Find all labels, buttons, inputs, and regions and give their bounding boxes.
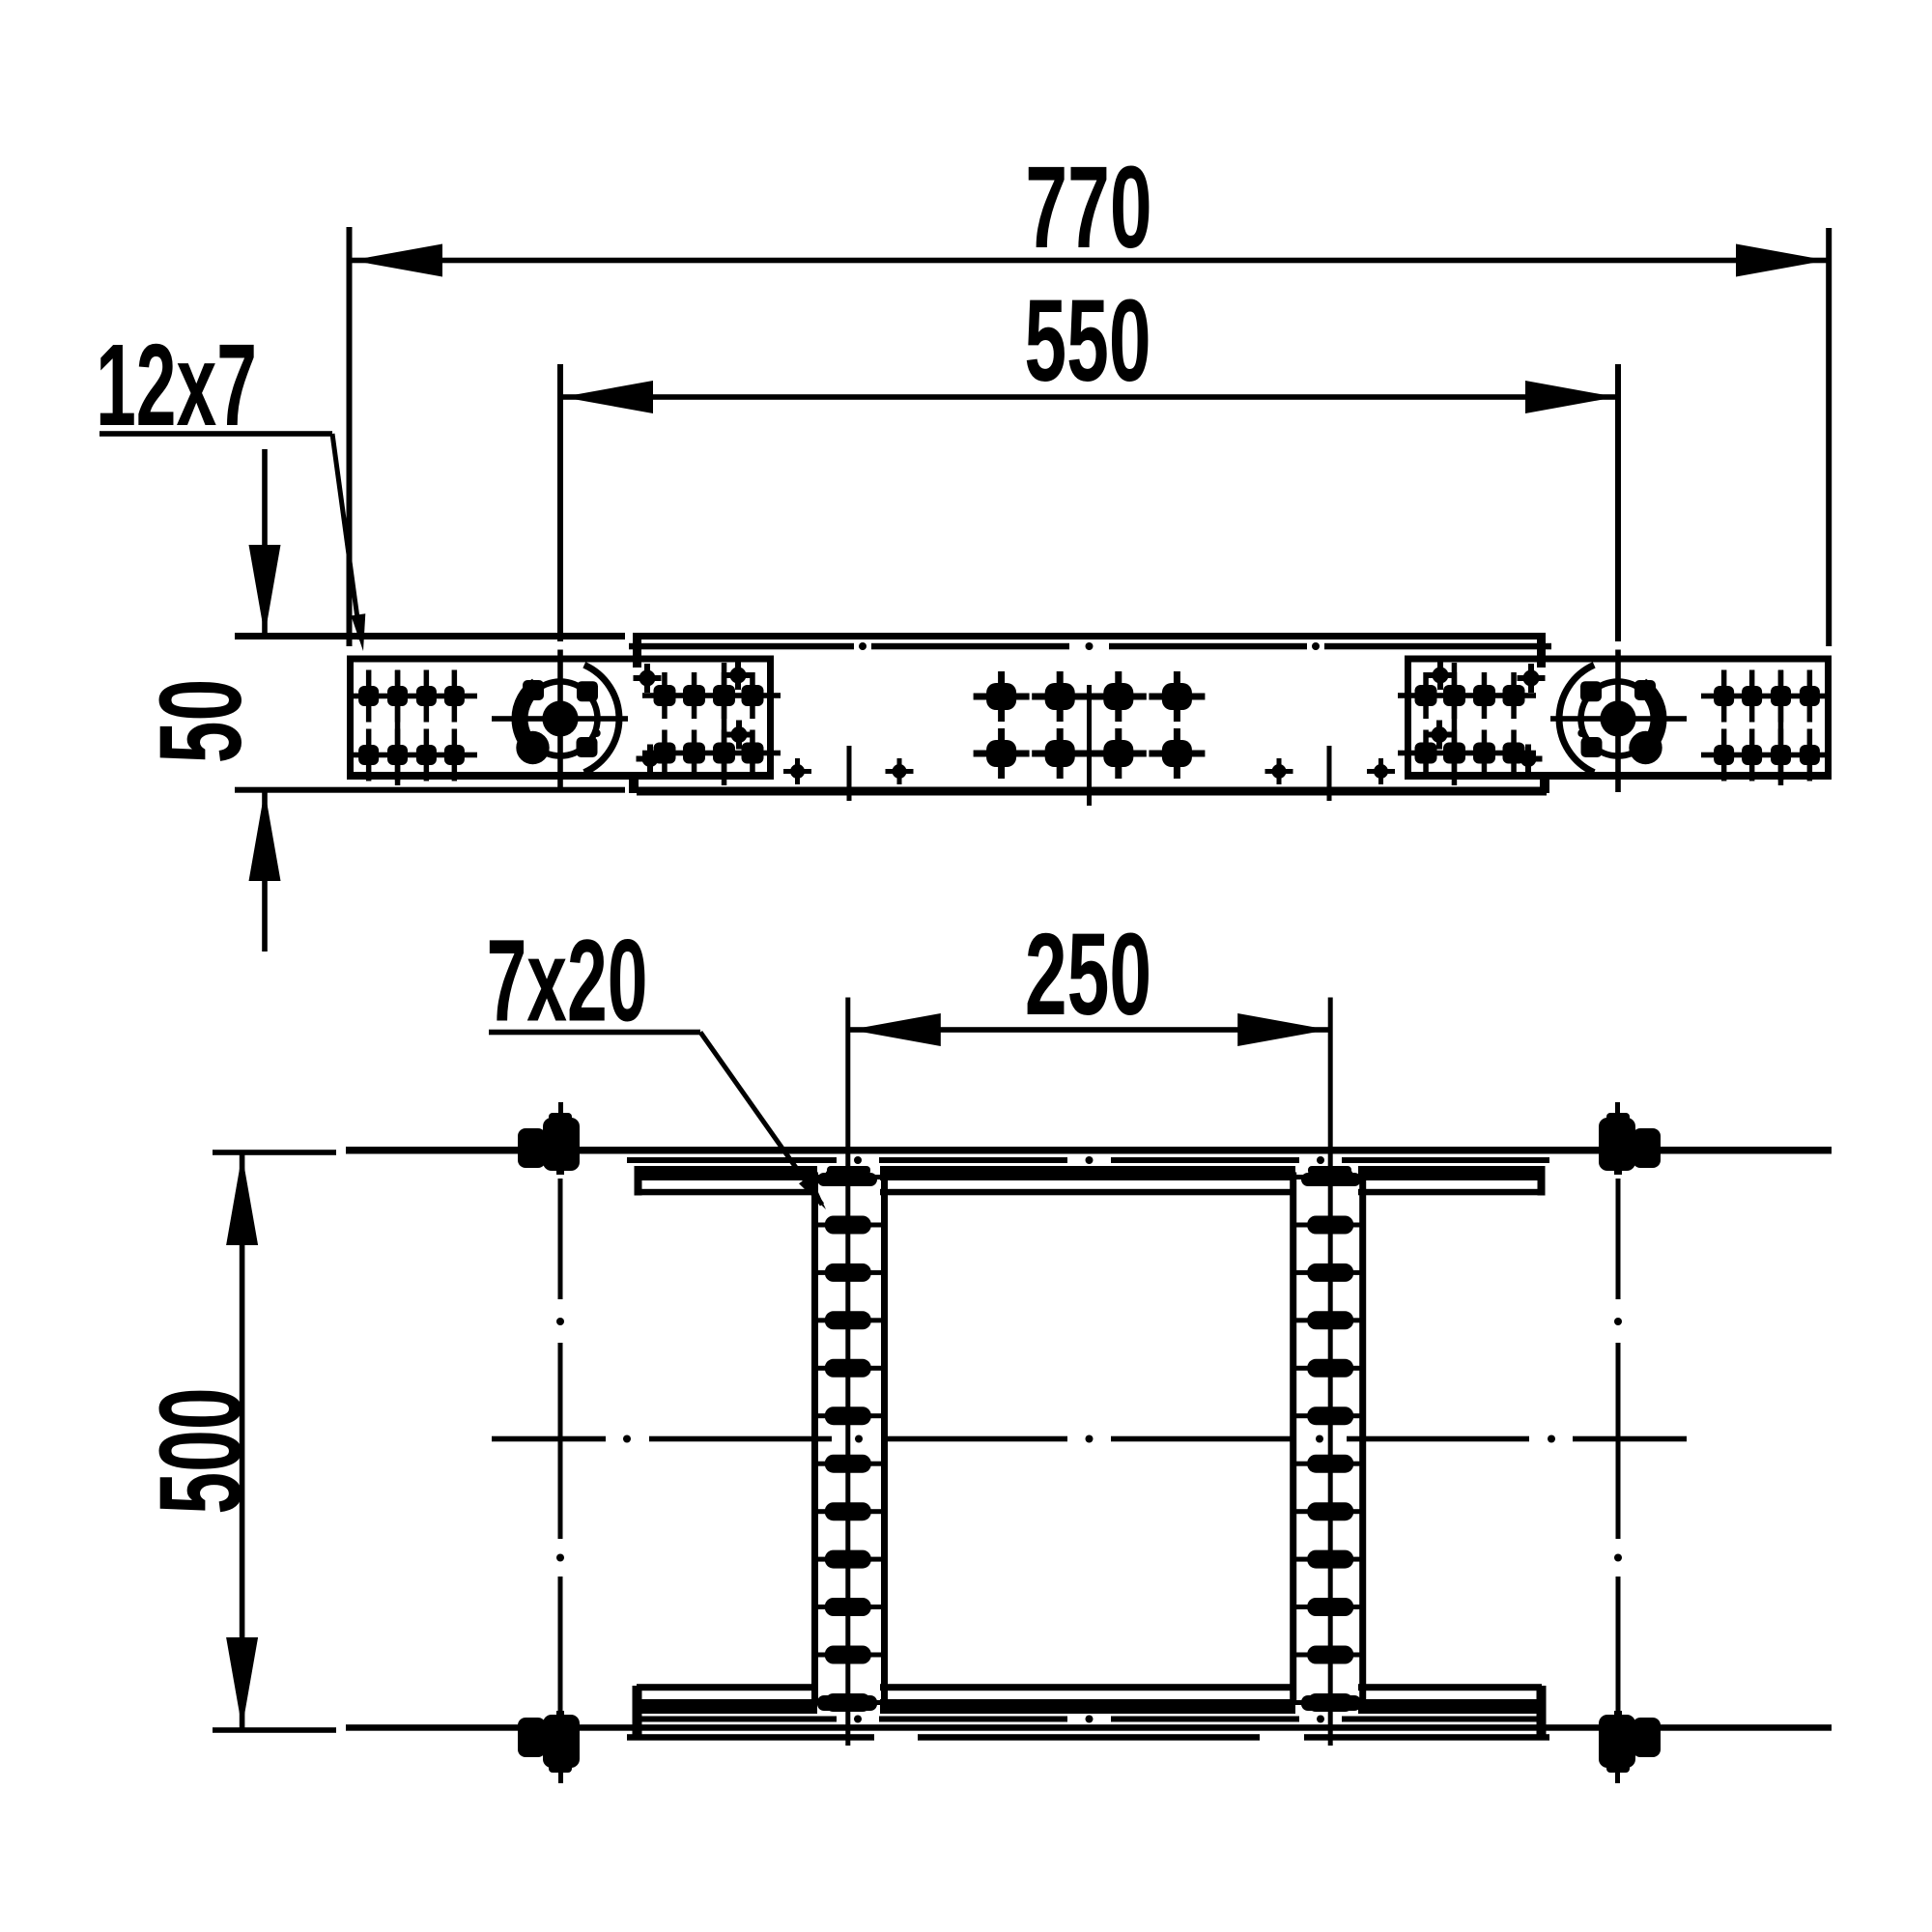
svg-text:50: 50 [135,679,266,763]
svg-text:7x20: 7x20 [487,916,648,1046]
svg-text:770: 770 [1025,142,1151,272]
svg-text:250: 250 [1025,909,1151,1039]
svg-text:550: 550 [1024,275,1151,406]
svg-text:500: 500 [135,1387,266,1514]
